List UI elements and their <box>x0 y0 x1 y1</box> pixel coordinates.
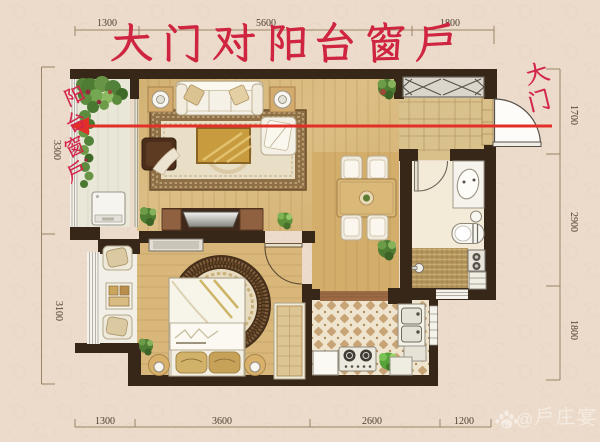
svg-text:@: @ <box>516 410 533 429</box>
svg-text:1300: 1300 <box>97 18 117 29</box>
svg-text:3100: 3100 <box>53 301 64 321</box>
svg-text:1300: 1300 <box>95 416 115 427</box>
svg-text:1800: 1800 <box>568 320 579 340</box>
svg-text:2600: 2600 <box>362 416 382 427</box>
svg-text:3300: 3300 <box>51 140 62 160</box>
svg-text:3600: 3600 <box>212 416 232 427</box>
svg-text:du: du <box>502 423 508 429</box>
svg-text:1200: 1200 <box>454 416 474 427</box>
svg-text:1700: 1700 <box>568 105 579 125</box>
svg-text:2900: 2900 <box>568 212 579 232</box>
